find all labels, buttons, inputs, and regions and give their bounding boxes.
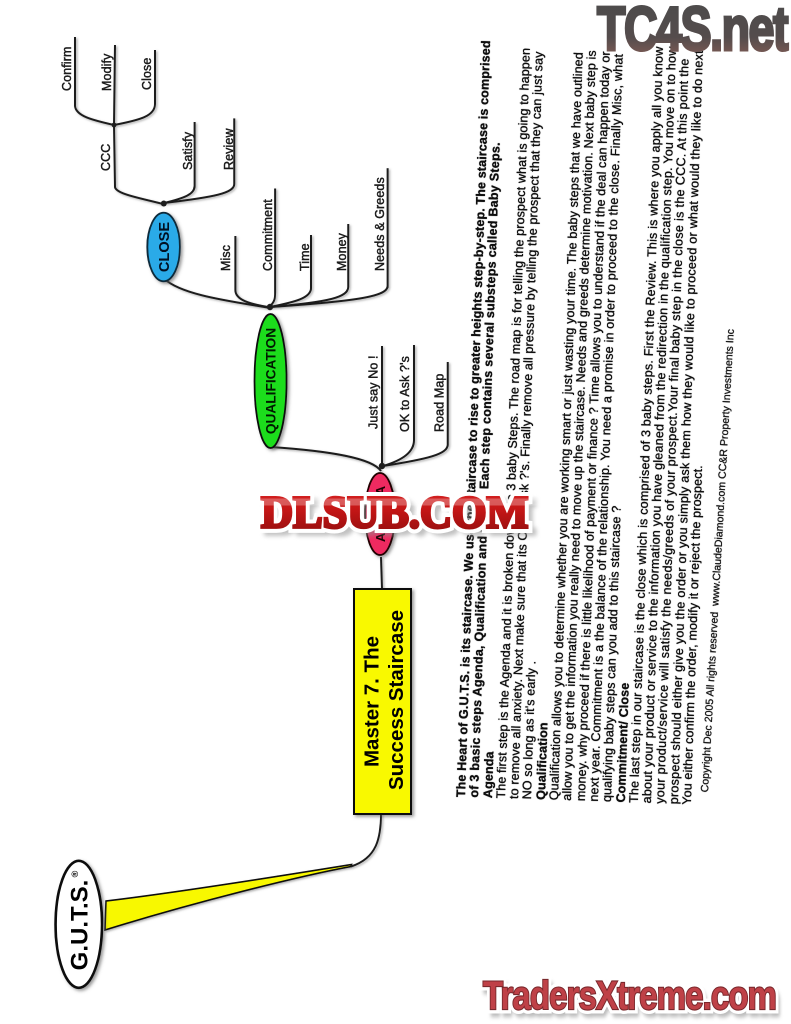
- svg-text:®: ®: [70, 870, 80, 877]
- svg-text:OK to Ask ?'s: OK to Ask ?'s: [398, 356, 412, 432]
- svg-text:CCC: CCC: [99, 144, 113, 171]
- svg-text:Success Staircase: Success Staircase: [385, 610, 408, 790]
- svg-text:Money: Money: [335, 232, 349, 271]
- svg-text:TC4S.net: TC4S.net: [597, 0, 788, 64]
- svg-text:QUALIFICATION: QUALIFICATION: [264, 328, 279, 434]
- svg-text:Just say No !: Just say No !: [367, 355, 381, 429]
- svg-text:DLSUB.COM: DLSUB.COM: [261, 486, 528, 537]
- svg-text:G.U.T.S.: G.U.T.S.: [67, 880, 94, 971]
- svg-text:Commitment: Commitment: [261, 199, 275, 271]
- svg-text:Road Map: Road Map: [433, 374, 447, 432]
- svg-text:Master 7. The: Master 7. The: [361, 636, 384, 767]
- svg-text:Needs & Greeds: Needs & Greeds: [373, 177, 387, 271]
- svg-text:Review: Review: [222, 128, 236, 170]
- svg-text:CLOSE: CLOSE: [157, 222, 173, 273]
- svg-text:Satisfy: Satisfy: [181, 131, 195, 170]
- svg-text:Time: Time: [298, 243, 312, 271]
- svg-text:TradersXtreme.com: TradersXtreme.com: [483, 973, 776, 1018]
- svg-text:Misc: Misc: [219, 245, 233, 271]
